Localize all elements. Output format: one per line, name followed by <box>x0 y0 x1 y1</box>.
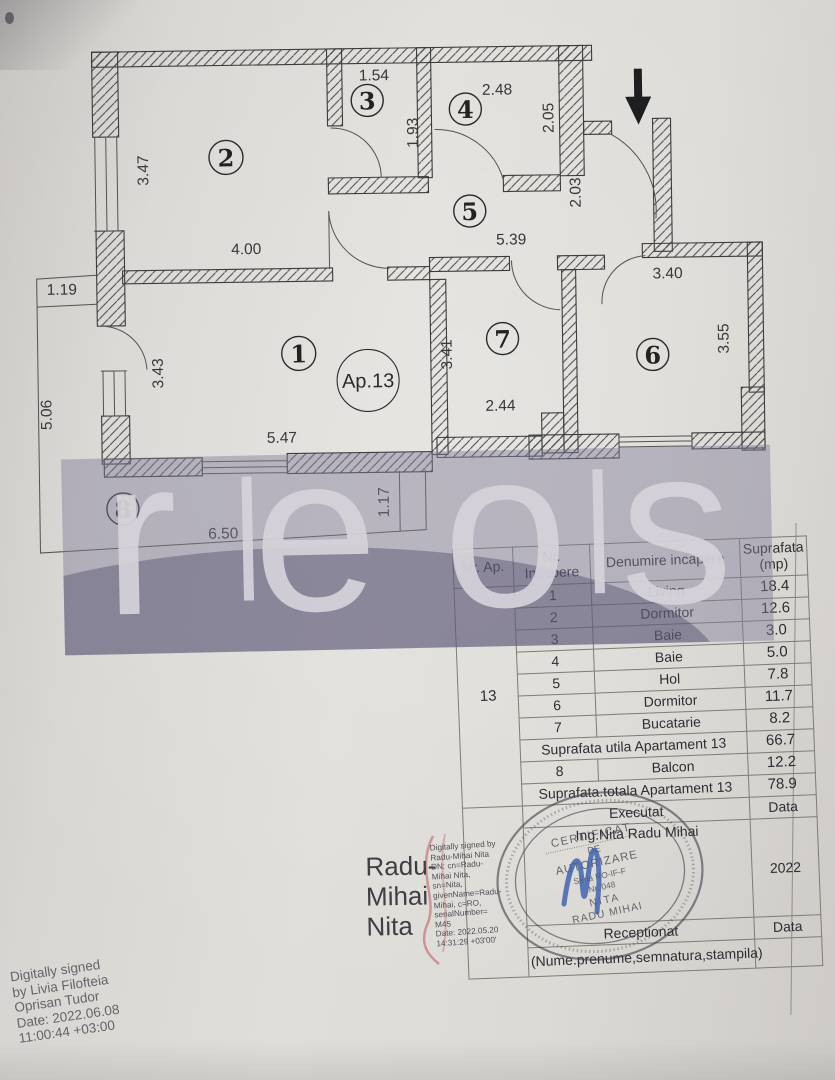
wall <box>529 434 619 459</box>
scanned-floor-plan-document: { "plan": { "apartment_label": "Ap.13", … <box>0 0 835 1080</box>
wall <box>328 177 428 194</box>
dim-label: 2.05 <box>540 103 557 133</box>
dim-label: 1.54 <box>359 67 390 84</box>
entrance-arrow <box>625 68 652 124</box>
wall <box>741 387 765 450</box>
dim-label: 4.00 <box>231 241 262 258</box>
wall <box>557 255 604 270</box>
door-arc <box>329 210 388 269</box>
door-arc <box>601 256 646 305</box>
wall <box>429 256 509 271</box>
wall <box>287 452 432 474</box>
room-2-number: 2 <box>217 143 234 172</box>
wall <box>558 45 584 175</box>
wall <box>92 52 119 137</box>
wall <box>123 268 333 284</box>
room-4-number: 4 <box>457 95 474 124</box>
dim-label: 5.39 <box>496 231 526 248</box>
dim-label: 2.03 <box>567 177 584 207</box>
room-1-number: 1 <box>290 339 307 368</box>
dim-label: 5.06 <box>38 400 55 430</box>
dim-label: 2.44 <box>485 397 516 414</box>
wall <box>416 48 432 178</box>
wall <box>642 242 762 258</box>
room-5-number: 5 <box>461 197 478 226</box>
door-arc <box>511 260 560 311</box>
dim-label: 3.47 <box>135 155 152 185</box>
dim-label: 3.41 <box>439 339 456 369</box>
wall <box>388 267 430 281</box>
dim-label: 3.43 <box>150 358 167 388</box>
radu-digital-signature-details: Digitally signed by Radu-Mihai Nita DN: … <box>429 837 538 949</box>
floor-plan-drawing: 1 2 3 4 5 6 7 8 Ap.13 3.47 4.00 1.54 1.9… <box>0 0 835 560</box>
wall <box>104 458 202 477</box>
col-header-nr-ap: Nr. Ap. <box>453 547 514 588</box>
room-7-number: 7 <box>494 324 511 353</box>
col-header-nr-incapere: Nr. Incapere <box>512 544 590 586</box>
photo-bottom-shadow <box>0 1040 835 1080</box>
dim-label: 1.93 <box>404 118 421 148</box>
wall <box>584 121 612 134</box>
apartment-number-cell: 13 <box>454 586 522 808</box>
wall <box>437 436 542 457</box>
wall <box>102 416 131 464</box>
wall <box>96 231 125 326</box>
dim-label: 3.55 <box>715 323 732 353</box>
room-8-number: 8 <box>114 495 131 524</box>
dim-label: 1.19 <box>47 282 77 299</box>
wall <box>747 242 764 392</box>
door-arc <box>100 326 147 371</box>
empty-cell <box>755 937 823 969</box>
dim-label: 1.17 <box>376 487 393 517</box>
room-6-number: 6 <box>644 340 661 369</box>
livia-digital-signature: Digitally signed by Livia Filofteia Opri… <box>9 955 122 1046</box>
wall <box>326 49 342 126</box>
year-cell: 2022 <box>750 817 821 917</box>
room-3-number: 3 <box>359 86 376 115</box>
apartment-label: Ap.13 <box>342 370 395 393</box>
door-arc <box>435 129 504 181</box>
dim-label: 2.48 <box>482 81 512 98</box>
dim-label: 6.50 <box>208 525 239 542</box>
radu-mihai-nita-signature: Radu- Mihai Nita <box>365 850 437 941</box>
wall <box>652 118 672 251</box>
dim-label: 3.40 <box>652 265 683 282</box>
wall <box>503 175 560 192</box>
door-arc <box>331 127 382 178</box>
col-header-denumire: Denumire incapere <box>589 538 740 583</box>
col-header-suprafata: Suprafata (mp) <box>739 536 807 578</box>
door-arc <box>611 133 657 219</box>
dim-label: 5.47 <box>267 429 297 446</box>
plan-geometry <box>92 43 766 477</box>
